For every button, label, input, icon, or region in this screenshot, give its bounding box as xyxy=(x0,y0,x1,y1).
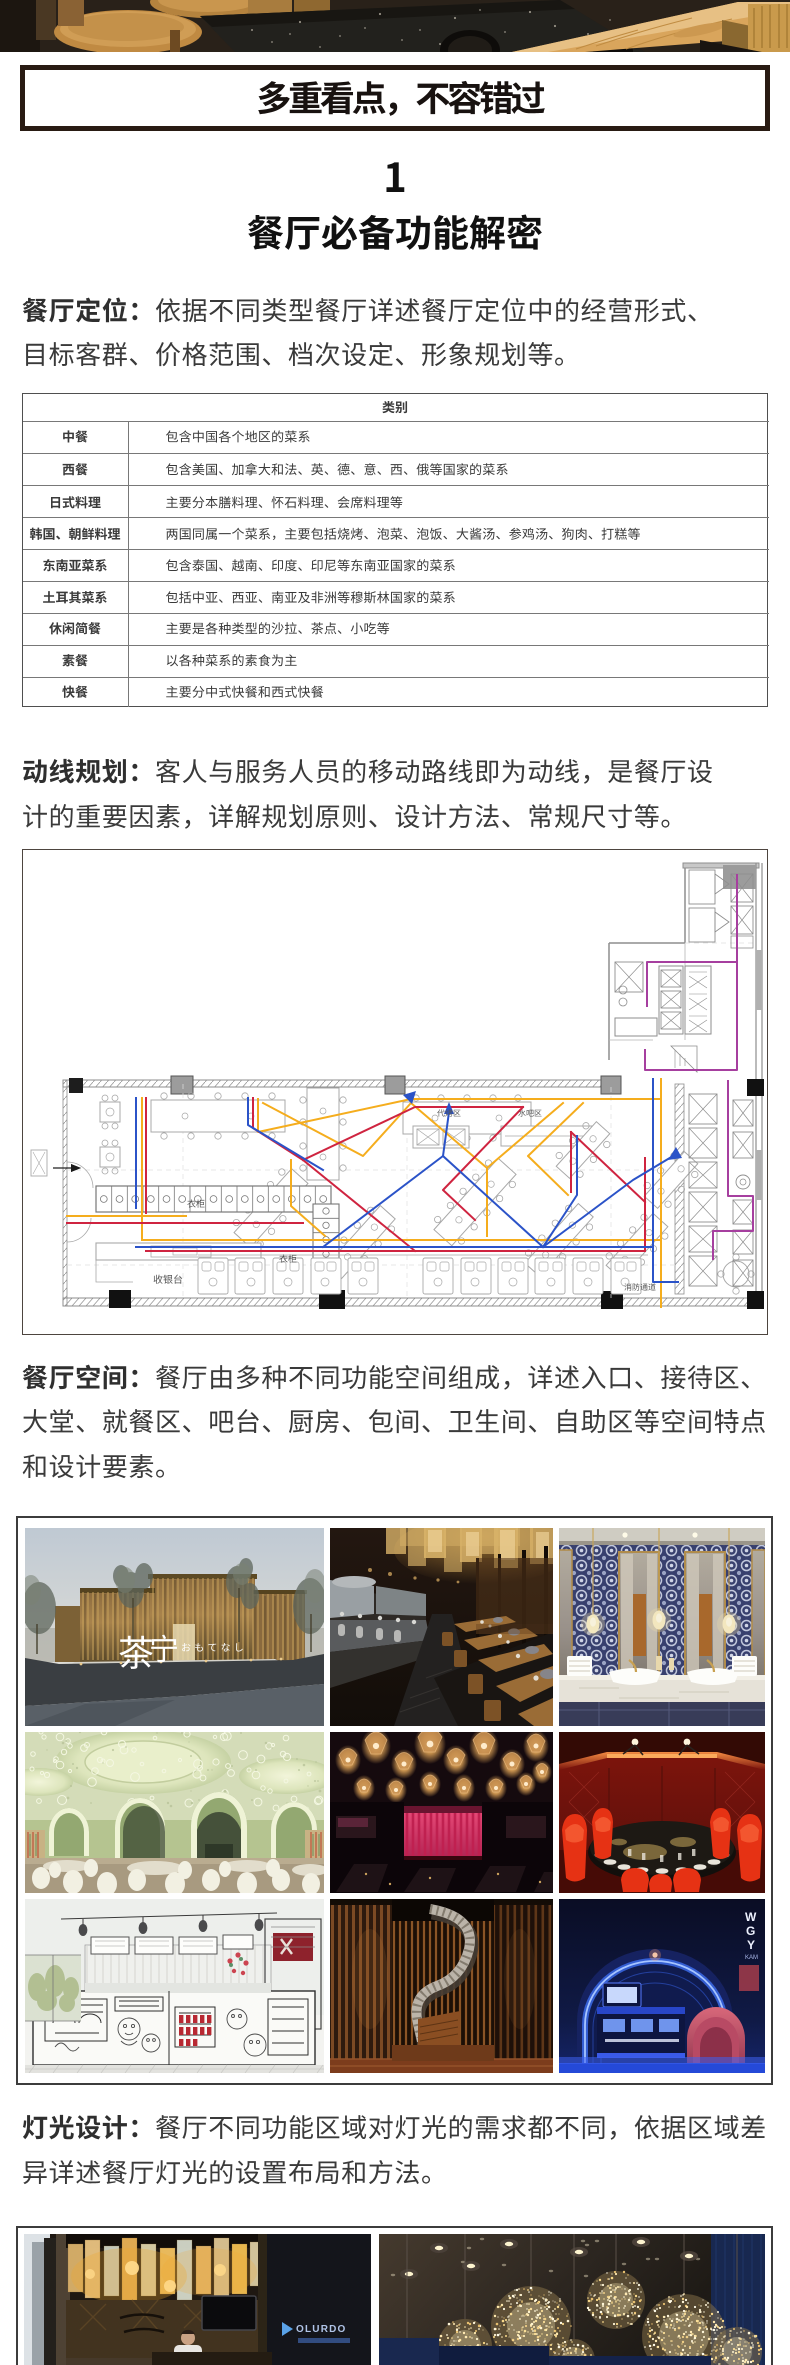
svg-text:G: G xyxy=(746,1924,755,1938)
svg-text:W: W xyxy=(745,1910,757,1924)
svg-text:KAM: KAM xyxy=(745,1955,758,1961)
svg-text:OLURDO: OLURDO xyxy=(296,2324,347,2335)
svg-text:Y: Y xyxy=(747,1938,755,1952)
